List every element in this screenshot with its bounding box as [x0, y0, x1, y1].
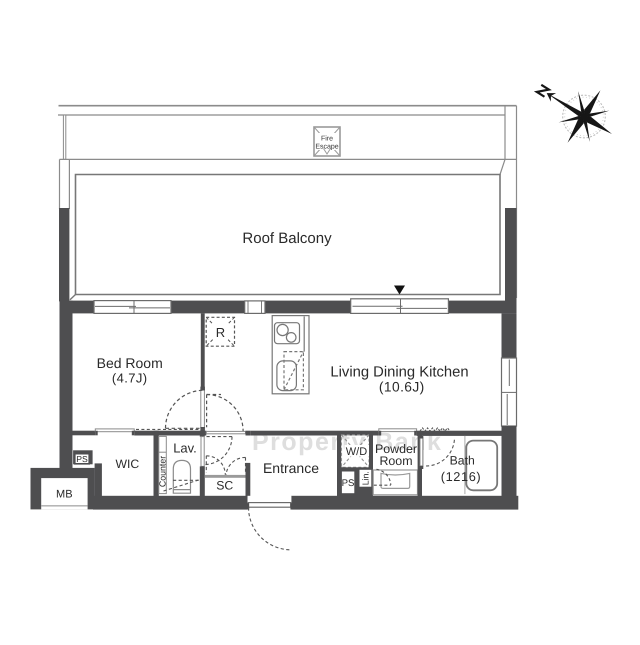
- svg-text:W/D: W/D: [346, 446, 367, 458]
- svg-text:Counter: Counter: [157, 456, 167, 487]
- svg-text:(1216): (1216): [441, 469, 482, 484]
- svg-text:SC: SC: [216, 479, 233, 493]
- svg-text:MB: MB: [56, 489, 73, 501]
- svg-text:Bath: Bath: [450, 454, 475, 468]
- svg-text:(4.7J): (4.7J): [112, 370, 148, 385]
- svg-text:PS: PS: [76, 454, 88, 464]
- svg-text:Lav.: Lav.: [173, 441, 197, 456]
- svg-text:Bed Room: Bed Room: [97, 355, 163, 371]
- svg-text:Fire: Fire: [321, 135, 333, 143]
- svg-text:PS: PS: [342, 478, 355, 489]
- svg-text:(10.6J): (10.6J): [379, 379, 425, 394]
- svg-text:R: R: [216, 325, 225, 340]
- svg-text:Entrance: Entrance: [263, 460, 319, 476]
- svg-text:Living Dining Kitchen: Living Dining Kitchen: [330, 364, 468, 380]
- svg-text:Roof Balcony: Roof Balcony: [242, 230, 332, 247]
- svg-text:WIC: WIC: [116, 457, 140, 471]
- svg-text:Escape: Escape: [315, 144, 338, 151]
- svg-text:Lin.: Lin.: [360, 471, 370, 485]
- svg-text:Room: Room: [379, 454, 412, 468]
